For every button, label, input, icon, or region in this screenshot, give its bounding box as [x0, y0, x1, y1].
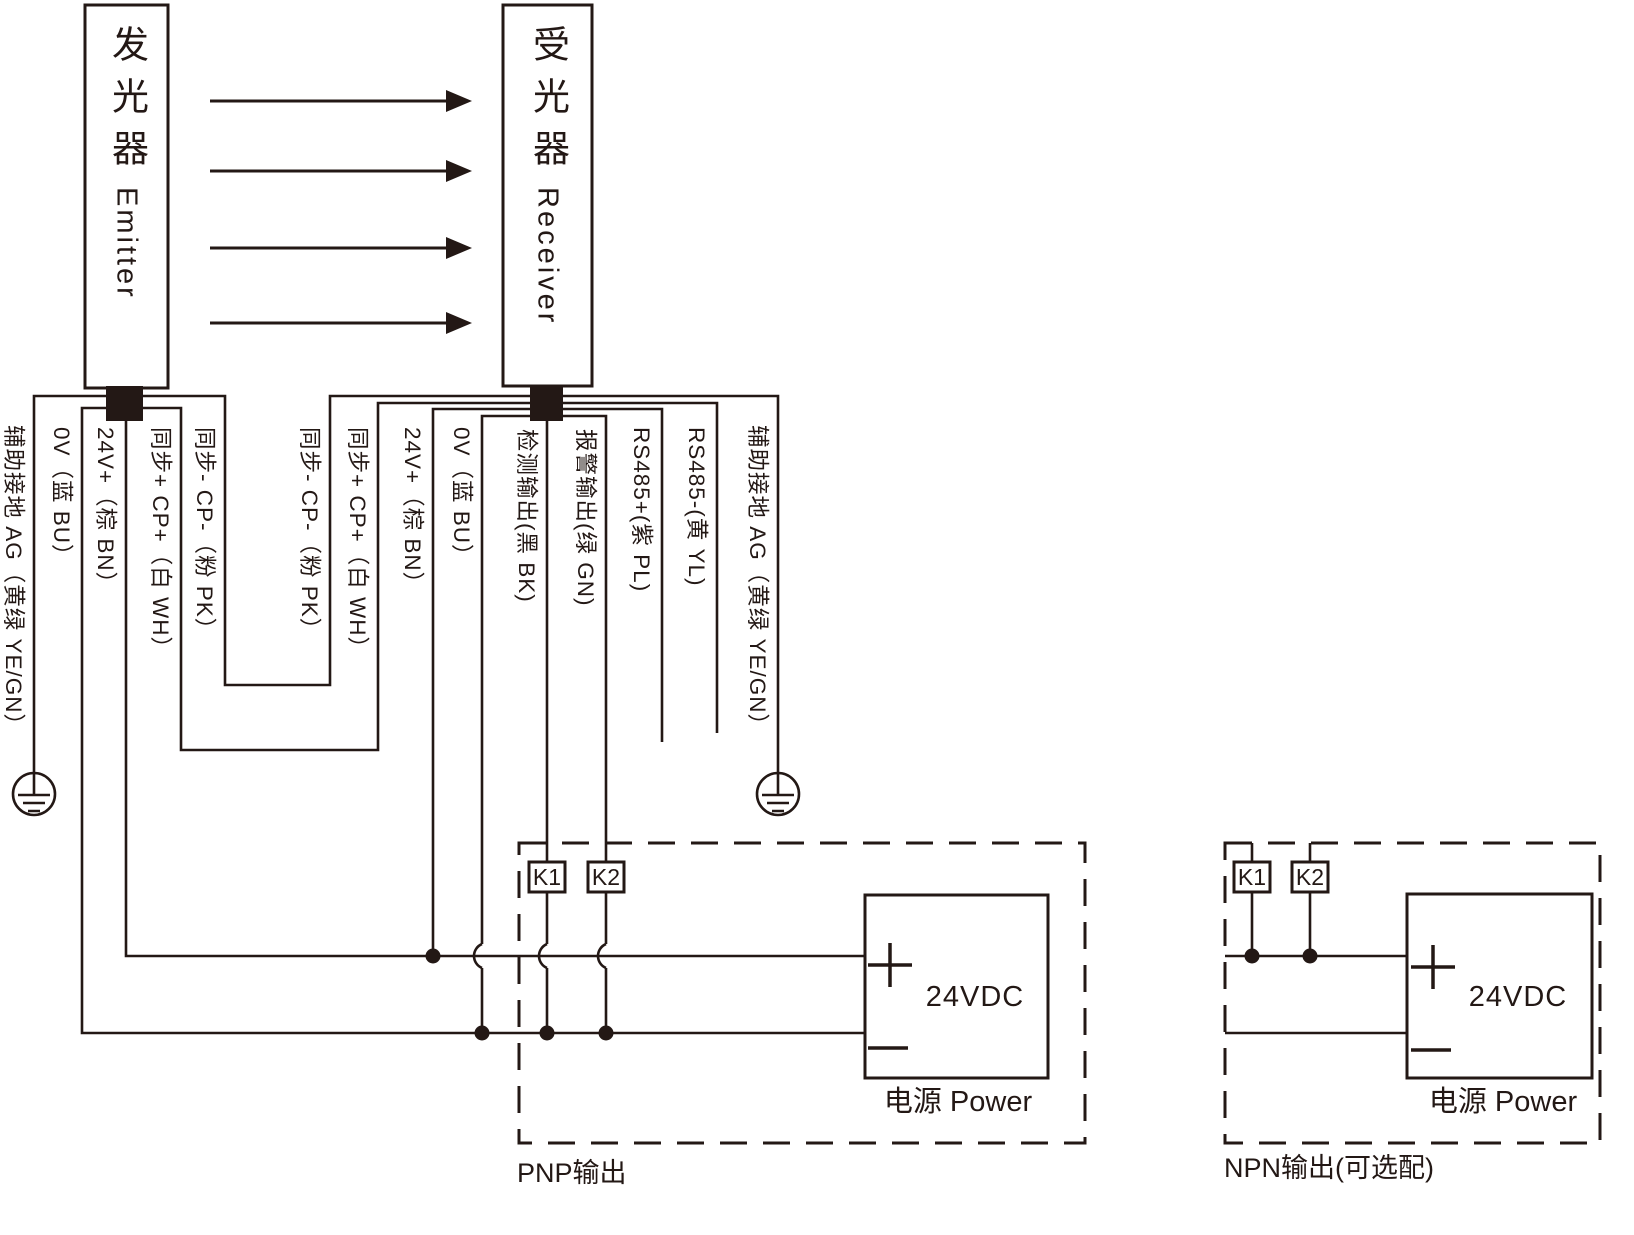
receiver-name-latin: Receiver: [532, 187, 564, 325]
ground-icon: [757, 773, 799, 815]
emitter-name-latin: Emitter: [111, 187, 143, 300]
junction-dot: [1303, 949, 1318, 964]
diagram-artwork: [0, 0, 1634, 1235]
junction-dot: [426, 949, 441, 964]
ground-icon: [13, 773, 55, 815]
wire-label-emitter-24v: 24V+（棕 BN）: [93, 427, 117, 595]
wire-label-receiver-sync-minus: 同步- CP-（粉 PK）: [297, 427, 321, 641]
emitter-label: 发光器Emitter: [85, 5, 168, 388]
npn-supply-label: 24VDC: [1448, 982, 1588, 1012]
beam-arrowhead-icon: [446, 237, 472, 259]
beam-arrowhead-icon: [446, 312, 472, 334]
wire-label-receiver-sync-plus: 同步+ CP+（白 WH）: [345, 427, 369, 660]
junction-dot: [599, 1026, 614, 1041]
pnp-supply-label: 24VDC: [905, 982, 1045, 1012]
npn-relay-k1-label: K1: [1234, 862, 1270, 892]
wire-label-rs485-plus: RS485+(紫 PL): [629, 427, 653, 592]
beam-arrowhead-icon: [446, 90, 472, 112]
wire-label-receiver-aux-ground: 辅助接地 AG（黄绿 YE/GN）: [745, 425, 769, 737]
pnp-relay-k2-label: K2: [588, 862, 624, 892]
junction-dot: [540, 1026, 555, 1041]
wire-label-rs485-minus: RS485-(黄 YL): [684, 427, 708, 587]
wire-label-alarm-output: 报警输出(绿 GN): [573, 429, 597, 607]
light-beam-arrows: [210, 90, 472, 334]
beam-arrowhead-icon: [446, 160, 472, 182]
wire-label-detect-output: 检测输出(黑 BK): [514, 429, 538, 603]
wire-label-emitter-sync-plus: 同步+ CP+（白 WH）: [148, 427, 172, 660]
wiring-diagram: 发光器Emitter 受光器Receiver 辅助接地 AG（黄绿 YE/GN）…: [0, 0, 1634, 1235]
junction-dot: [1245, 949, 1260, 964]
receiver-label: 受光器Receiver: [503, 5, 592, 386]
emitter-name-cjk: 发光器: [107, 25, 148, 181]
pnp-power-caption: 电源 Power: [853, 1086, 1063, 1118]
wire-label-emitter-aux-ground: 辅助接地 AG（黄绿 YE/GN）: [1, 425, 25, 737]
wire-label-emitter-sync-minus: 同步- CP-（粉 PK）: [192, 427, 216, 641]
receiver-name-cjk: 受光器: [528, 25, 569, 181]
npn-relay-k2-label: K2: [1292, 862, 1328, 892]
wire-label-emitter-0v: 0V（蓝 BU）: [49, 427, 73, 568]
receiver-connector: [530, 386, 563, 421]
wire-label-receiver-24v: 24V+（棕 BN）: [400, 427, 424, 595]
npn-power-caption: 电源 Power: [1398, 1086, 1608, 1118]
junction-dot: [475, 1026, 490, 1041]
pnp-section-caption: PNP输出: [517, 1158, 627, 1188]
pnp-relay-k1-label: K1: [529, 862, 565, 892]
emitter-connector: [106, 386, 143, 421]
npn-section-caption: NPN输出(可选配): [1224, 1153, 1434, 1183]
wire-label-receiver-0v: 0V（蓝 BU）: [449, 427, 473, 568]
